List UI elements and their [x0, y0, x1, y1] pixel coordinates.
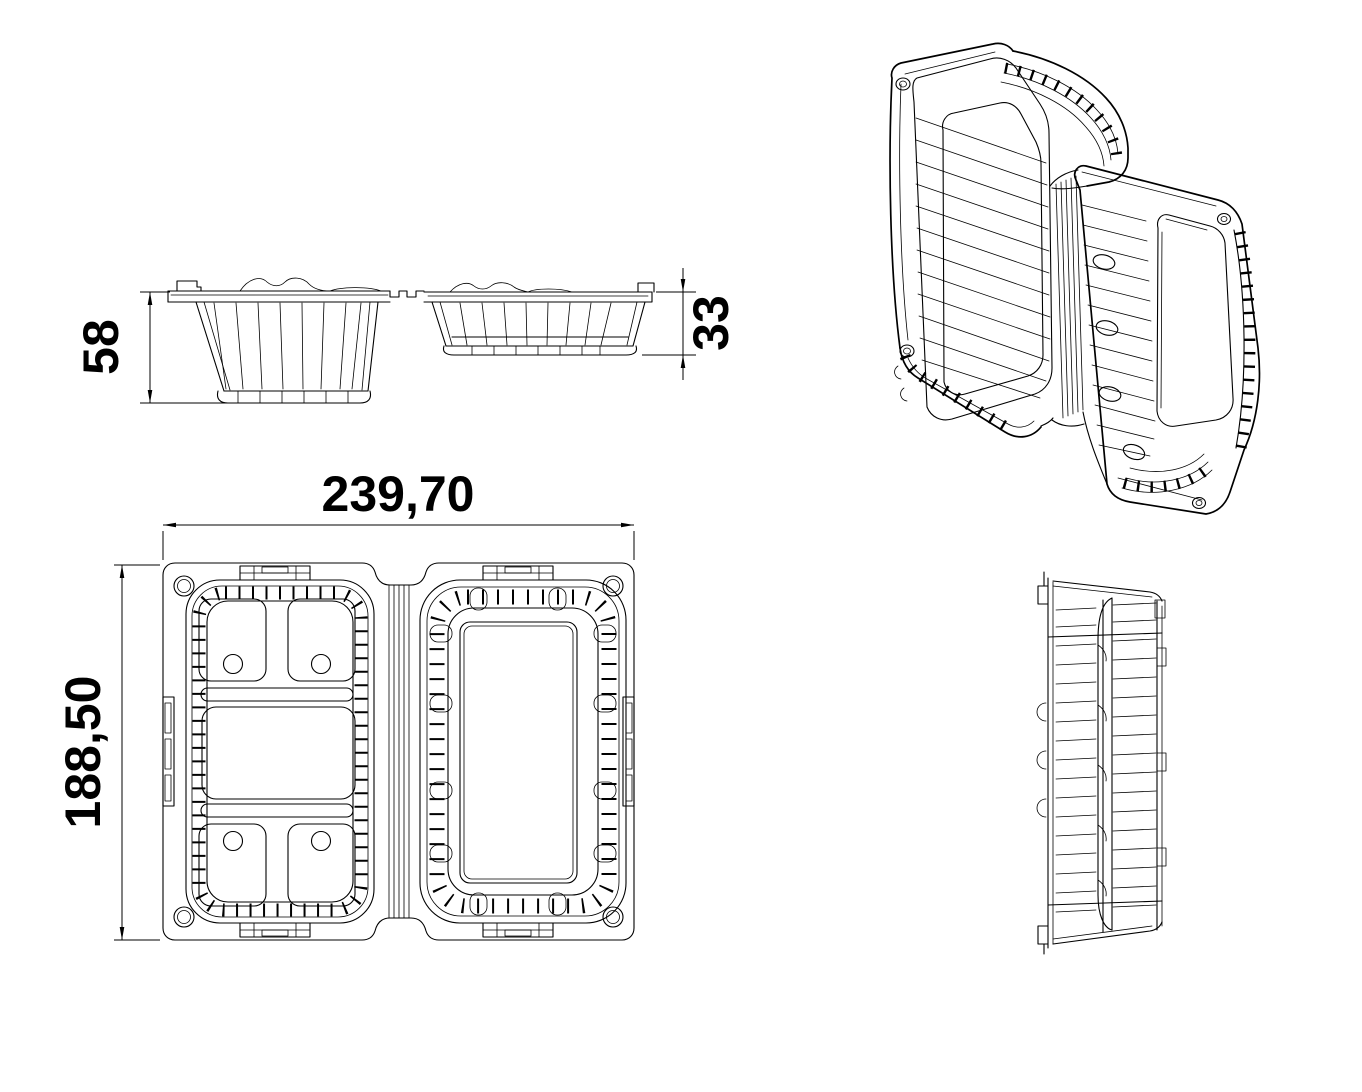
isometric-view — [890, 43, 1259, 514]
base-compartment — [288, 824, 355, 906]
end-ribs — [1048, 603, 1162, 912]
lid-window — [460, 622, 577, 883]
iso-hinge — [1041, 170, 1087, 426]
iso-base-half — [890, 43, 1128, 436]
dimension-base-depth: 58 — [73, 292, 255, 403]
edge-tab — [163, 697, 174, 806]
drain-hole — [312, 832, 331, 851]
iso-corner-ring — [1218, 214, 1231, 225]
dim-overall-width-label: 188,50 — [55, 676, 111, 829]
plan-view: 239,70 188,50 — [55, 466, 634, 940]
dimension-overall-length: 239,70 — [163, 466, 634, 560]
side-view: 58 33 — [73, 268, 739, 403]
hinge-profile — [390, 291, 424, 297]
end-right-rim — [1155, 600, 1166, 930]
drain-hole — [312, 655, 331, 674]
drain-hole — [224, 655, 243, 674]
corner-hole — [174, 907, 194, 927]
iso-corner-ring — [896, 78, 910, 90]
end-mid-wall — [1098, 598, 1112, 932]
base-center-panel — [202, 707, 355, 799]
dim-lid-depth-label: 33 — [683, 295, 739, 351]
label-tab — [240, 923, 310, 937]
label-tab — [240, 566, 310, 580]
end-view — [1037, 572, 1166, 954]
dimension-lid-depth: 33 — [642, 268, 739, 380]
base-rim — [186, 580, 374, 923]
dim-base-depth-label: 58 — [73, 319, 129, 375]
dimension-overall-width: 188,50 — [55, 565, 160, 940]
rim-pill — [549, 893, 566, 915]
label-tab — [483, 566, 553, 580]
corner-hole — [174, 576, 194, 596]
iso-lid-half — [1075, 166, 1260, 514]
edge-tab — [623, 697, 634, 806]
corner-hole — [603, 576, 623, 596]
corner-hole — [603, 907, 623, 927]
rib-slot — [201, 804, 353, 817]
drain-hole — [224, 832, 243, 851]
rim-pill — [1121, 442, 1146, 463]
technical-drawing-sheet: 58 33 — [0, 0, 1362, 1092]
lid-rim — [420, 580, 626, 923]
rib-slot — [201, 688, 353, 701]
rim-pill — [470, 588, 487, 610]
base-compartments — [199, 599, 355, 906]
rim-pill — [1095, 319, 1120, 338]
base-compartment — [199, 824, 266, 906]
lid-tray-profile — [424, 283, 654, 355]
base-tray-profile — [168, 278, 390, 403]
dim-overall-length-label: 239,70 — [322, 466, 475, 522]
label-tab — [483, 923, 553, 937]
drawing-canvas: 58 33 — [0, 0, 1362, 1092]
rim-pill — [1092, 253, 1117, 272]
base-compartment — [199, 599, 266, 681]
hinge-strip — [389, 585, 409, 918]
base-compartment — [288, 599, 355, 681]
